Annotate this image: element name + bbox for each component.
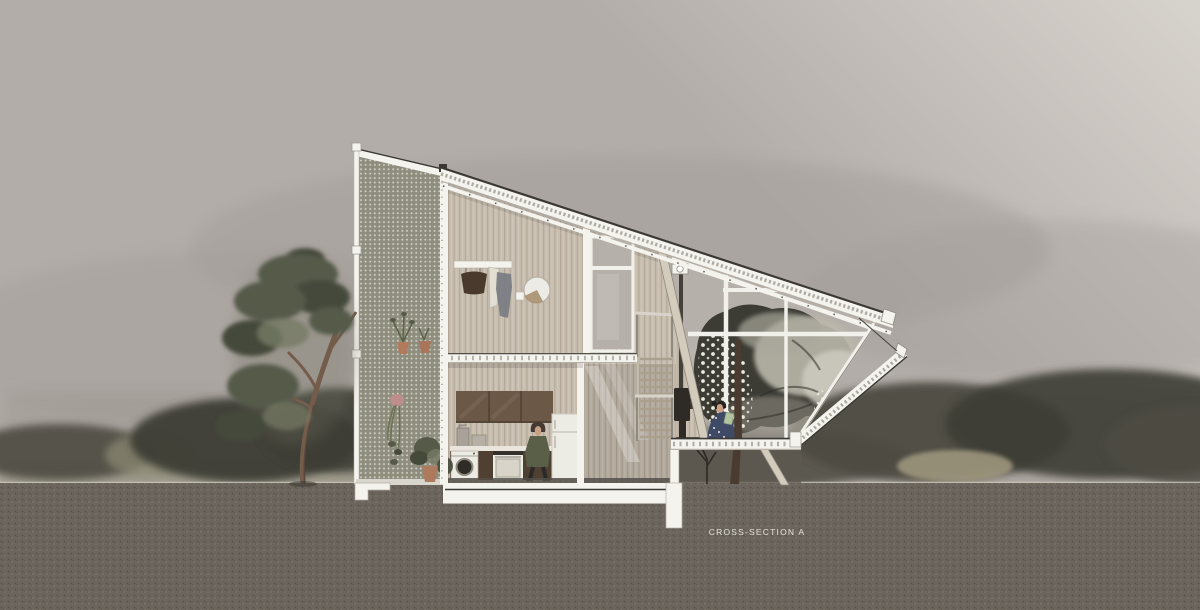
toaster: [472, 435, 486, 447]
stove-oven: [493, 451, 523, 480]
wall-shelf-box: [516, 292, 524, 300]
screen-joint: [352, 246, 361, 254]
left-wall: [439, 164, 448, 484]
stove-pedestal: [679, 421, 686, 438]
hair-bun: [712, 401, 717, 406]
awning-hinge-bracket: [790, 432, 801, 447]
architectural-section-canvas: CROSS-SECTION A: [0, 0, 1200, 610]
hanging-sweater: [461, 272, 487, 295]
foundation-pier: [666, 483, 682, 528]
hay-bale: [897, 450, 1013, 482]
terracotta-pot: [397, 342, 409, 354]
hanging-flowers: [390, 394, 404, 406]
interior-post: [583, 227, 590, 354]
section-label: CROSS-SECTION A: [709, 527, 805, 537]
window-sheen: [597, 274, 619, 340]
green-book: [724, 412, 734, 424]
slab-shadow: [447, 363, 583, 368]
deck-support-post: [670, 449, 679, 484]
indoor-tree-trunk-upper: [734, 340, 742, 441]
coffee-maker: [457, 425, 469, 447]
tree-base-shadow: [289, 481, 317, 487]
stair-window: [591, 237, 633, 351]
foundation-slab: [443, 483, 679, 504]
kitchen-partition: [577, 363, 584, 484]
terracotta-pot: [419, 341, 431, 353]
deck-slab: [671, 438, 801, 450]
perforated-screen: [352, 143, 453, 485]
cross-section-rendering: CROSS-SECTION A: [0, 0, 1200, 610]
stove-body: [674, 388, 690, 421]
person-coat: [525, 436, 550, 467]
screen-post-cap: [352, 143, 361, 151]
flue-collar: [677, 266, 683, 272]
window-transom: [591, 266, 633, 270]
washing-machine: [451, 451, 478, 480]
coat-rack-bar: [454, 261, 512, 268]
